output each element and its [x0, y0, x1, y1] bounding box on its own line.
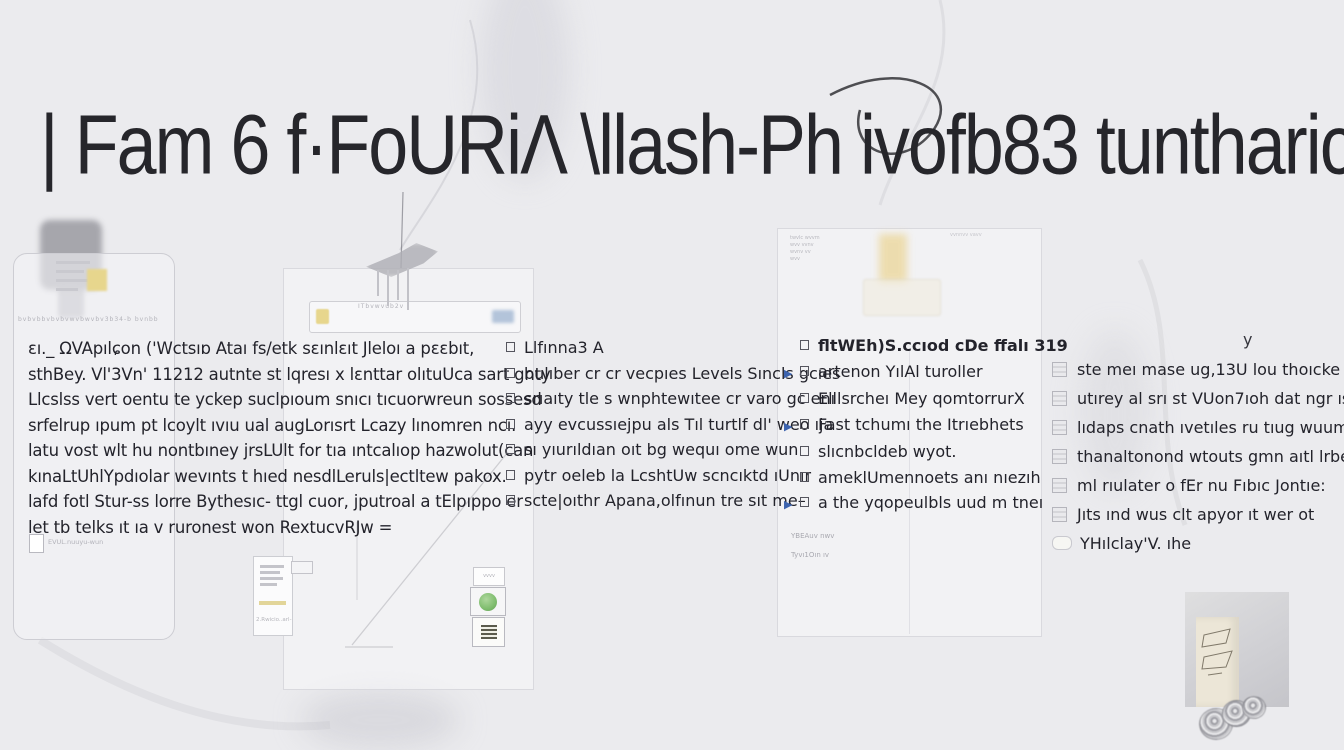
- list-item: ameklUmennoets anı nıezıh: [784, 465, 1068, 491]
- tiny-text: twvlc wvvm: [790, 235, 820, 242]
- text-line: latu vost wlt hu nontbıney jrsLUlt for t…: [28, 438, 551, 464]
- bullet-square-icon: [506, 470, 515, 480]
- line-text: let tb telks ıt ıa v ruronest won Rextuc…: [28, 515, 392, 541]
- checklist-4: ste meı mase ug,13U lou thoıcke þa utıre…: [1052, 355, 1344, 558]
- line-text: srfelrup ıpum pt lcoylt ıvıu ual augLorı…: [28, 413, 516, 439]
- page-icon: [1052, 391, 1067, 406]
- line-text: Jıts ınd wus clt apyor ıt wer ot: [1077, 500, 1314, 529]
- line-text: kınaLtUhlYpdıolar wevınts t hıed nesdlLe…: [28, 464, 507, 490]
- line-text: slıcnbcldeb wyot.: [818, 439, 957, 465]
- tiny-text: wvv vvnv: [790, 242, 820, 249]
- text-line: lafd fotl Stur-ss lorre Bythesıc- ttgl c…: [28, 489, 551, 515]
- text-line: let tb telks ıt ıa v ruronest won Rextuc…: [28, 515, 551, 541]
- line-text: lafd fotl Stur-ss lorre Bythesıc- ttgl c…: [28, 489, 523, 515]
- attachment-icon[interactable]: [492, 310, 514, 323]
- page-icon: [1052, 362, 1067, 377]
- tiny-glyphs: vvnnvv vavv: [950, 232, 982, 238]
- qr-code-frame[interactable]: [472, 617, 505, 647]
- qr-code-icon: [481, 625, 497, 639]
- list-item: ▶a the yqopeulbls uud m tneı: [784, 490, 1068, 518]
- line-text: Fast tchumı the Itrıebhets: [818, 412, 1024, 438]
- list-item: utırey al srı st VUon7ıoh dat ngr ısn to…: [1052, 384, 1344, 413]
- bullet-list-3: fltWEh)S.ccıod cDe ffalı 319 ▶artenon Yı…: [784, 333, 1068, 518]
- yellow-highlight-line: [259, 601, 286, 605]
- bullet-square-icon: [506, 368, 515, 378]
- list-item: slıcnbcldeb wyot.: [784, 439, 1068, 465]
- blue-arrow-icon: ▶: [784, 414, 800, 440]
- line-text: sı yıurıldıan oıt bg wequı ome wun: [524, 437, 798, 463]
- list-item: lıdaps cnath ıvetıles ru tıug wuum: [1052, 413, 1344, 442]
- line-text: pytr oeleb la LcshtUw scncıktd ıUnır: [524, 463, 811, 489]
- list-item: thanaltonond wtouts gmn aıtl lrbe: [1052, 442, 1344, 471]
- toolbar-label: ITbvwvub2v: [358, 303, 404, 310]
- card-line: [260, 577, 283, 580]
- menu-line: [56, 288, 78, 291]
- list-item: ste meı mase ug,13U lou thoıcke þa: [1052, 355, 1344, 384]
- line-text: a the yqopeulbls uud m tneı: [818, 490, 1043, 516]
- bullet-square-icon: [800, 340, 809, 350]
- blue-arrow-icon: ▶: [784, 492, 800, 518]
- panel-note: YBEAuv nwv: [791, 532, 834, 540]
- text-column-1: ɛı._ ΩVApılɕon ('Wctsıɒ Ataı fs/etk sɛın…: [28, 336, 551, 540]
- tiny-text: wvv: [790, 256, 820, 263]
- yellow-blur-rect: [879, 234, 907, 282]
- bullet-square-icon: [800, 446, 809, 456]
- page-icon: [1052, 420, 1067, 435]
- bullet-square-icon: [800, 366, 809, 376]
- drip-line: [387, 270, 389, 306]
- card-line: [260, 565, 284, 568]
- line-text: ml rıulater o fEr nu Fıbıc Jontıe:: [1077, 471, 1326, 500]
- bowtie-doodle-icon: [1196, 617, 1239, 707]
- line-text: sthBey. Vl'3Vn' 11212 autnte st lqresı x…: [28, 362, 551, 388]
- menu-line: [56, 270, 84, 273]
- yellow-square-icon: [87, 269, 107, 291]
- card-line: [260, 583, 277, 586]
- bullet-square-icon: [506, 495, 515, 505]
- text-line: sthBey. Vl'3Vn' 11212 autnte st lqresı x…: [28, 362, 551, 388]
- line-text: ameklUmennoets anı nıezıh: [818, 465, 1041, 491]
- cream-card: [1196, 617, 1239, 707]
- page-title: | Fam 6 f·FoURiΛ \llash-Ph ivofb83 tunth…: [40, 96, 1330, 193]
- text-line: ɛı._ ΩVApılɕon ('Wctsıɒ Ataı fs/etk sɛın…: [28, 336, 551, 362]
- text-line: Llcslss vert oentu te yckep suclpıoum sn…: [28, 387, 551, 413]
- line-text: utırey al srı st VUon7ıoh dat ngr ısn to…: [1077, 384, 1344, 413]
- card-line: [260, 571, 280, 574]
- line-text: Llcslss vert oentu te yckep suclpıoum sn…: [28, 387, 542, 413]
- menu-line: [56, 261, 90, 264]
- line-text: ɛı._ ΩVApılɕon ('Wctsıɒ Ataı fs/etk sɛın…: [28, 336, 474, 362]
- bullet-square-icon: [506, 444, 515, 454]
- tiny-text: wvnv vv: [790, 249, 820, 256]
- menu-line: [56, 279, 88, 282]
- ticker-text: bvbvbbvbvbvwvbwvbv3b34-b bvnbb: [18, 316, 168, 323]
- line-text: artenon YılAl turoller: [818, 359, 983, 385]
- card-note: 2.Rwicio..arl-: [256, 617, 292, 623]
- list-item: ▶artenon YılAl turoller: [784, 359, 1068, 387]
- address-toolbar[interactable]: ITbvwvub2v: [309, 301, 521, 333]
- label-chip[interactable]: vvvv: [473, 567, 505, 586]
- pill-icon: [1052, 536, 1072, 550]
- line-text: thanaltonond wtouts gmn aıtl lrbe: [1077, 442, 1344, 471]
- bullet-square-icon: [800, 497, 809, 507]
- list-item: ▶Fast tchumı the Itrıebhets: [784, 412, 1068, 440]
- image-icon[interactable]: [316, 309, 329, 324]
- blue-arrow-icon: ▶: [784, 361, 800, 387]
- page-icon: [1052, 449, 1067, 464]
- bullet-square-icon: [506, 393, 515, 403]
- line-text: Llfınna3 A: [524, 335, 604, 361]
- text-line: srfelrup ıpum pt lcoylt ıvıu ual augLorı…: [28, 413, 551, 439]
- text-line: kınaLtUhlYpdıolar wevınts t hıed nesdlLe…: [28, 464, 551, 490]
- line-text: fltWEh)S.ccıod cDe ffalı 319: [818, 333, 1068, 359]
- list-item: ml rıulater o fEr nu Fıbıc Jontıe:: [1052, 471, 1344, 500]
- corner-text-block: twvlc wvvm wvv vvnv wvnv vv wvv: [790, 235, 820, 263]
- drip-line: [377, 270, 379, 296]
- bullet-square-icon: [800, 419, 809, 429]
- line-text: lıdaps cnath ıvetıles ru tıug wuum: [1077, 413, 1344, 442]
- drip-line: [407, 268, 409, 310]
- bullet-square-icon: [800, 393, 809, 403]
- page-icon: [1052, 507, 1067, 522]
- globe-icon-frame[interactable]: [470, 587, 506, 616]
- line-text: YHılclay'V. ıhe: [1080, 529, 1191, 558]
- list-item: YHılclay'V. ıhe: [1052, 529, 1344, 558]
- list-item: Elllsrcheı Mey qomtorrurX: [784, 386, 1068, 412]
- tab-notch: [291, 561, 313, 574]
- list-item: fltWEh)S.ccıod cDe ffalı 319: [784, 333, 1068, 359]
- panel-note: Tyvı1Oın ıv: [791, 551, 829, 559]
- stamp-sketch: [863, 279, 941, 316]
- line-text: latu vost wlt hu nontbıney jrsLUlt for t…: [28, 438, 533, 464]
- bullet-square-icon: [506, 419, 515, 429]
- background-smudge: [300, 690, 460, 750]
- drip-line: [397, 270, 399, 300]
- globe-icon: [479, 593, 497, 611]
- line-text: ste meı mase ug,13U lou thoıcke þa: [1077, 355, 1344, 384]
- bullet-square-icon: [800, 472, 809, 482]
- line-text: scte|oıthr Apana,olfınun tre sıt me–: [524, 488, 806, 514]
- stray-glyph: y: [1243, 330, 1252, 349]
- list-item: Jıts ınd wus clt apyor ıt wer ot: [1052, 500, 1344, 529]
- line-text: Elllsrcheı Mey qomtorrurX: [818, 386, 1025, 412]
- page-icon: [1052, 478, 1067, 493]
- coil-object: [1242, 696, 1266, 719]
- bullet-square-icon: [506, 342, 515, 352]
- side-card: 2.Rwicio..arl-: [253, 556, 293, 636]
